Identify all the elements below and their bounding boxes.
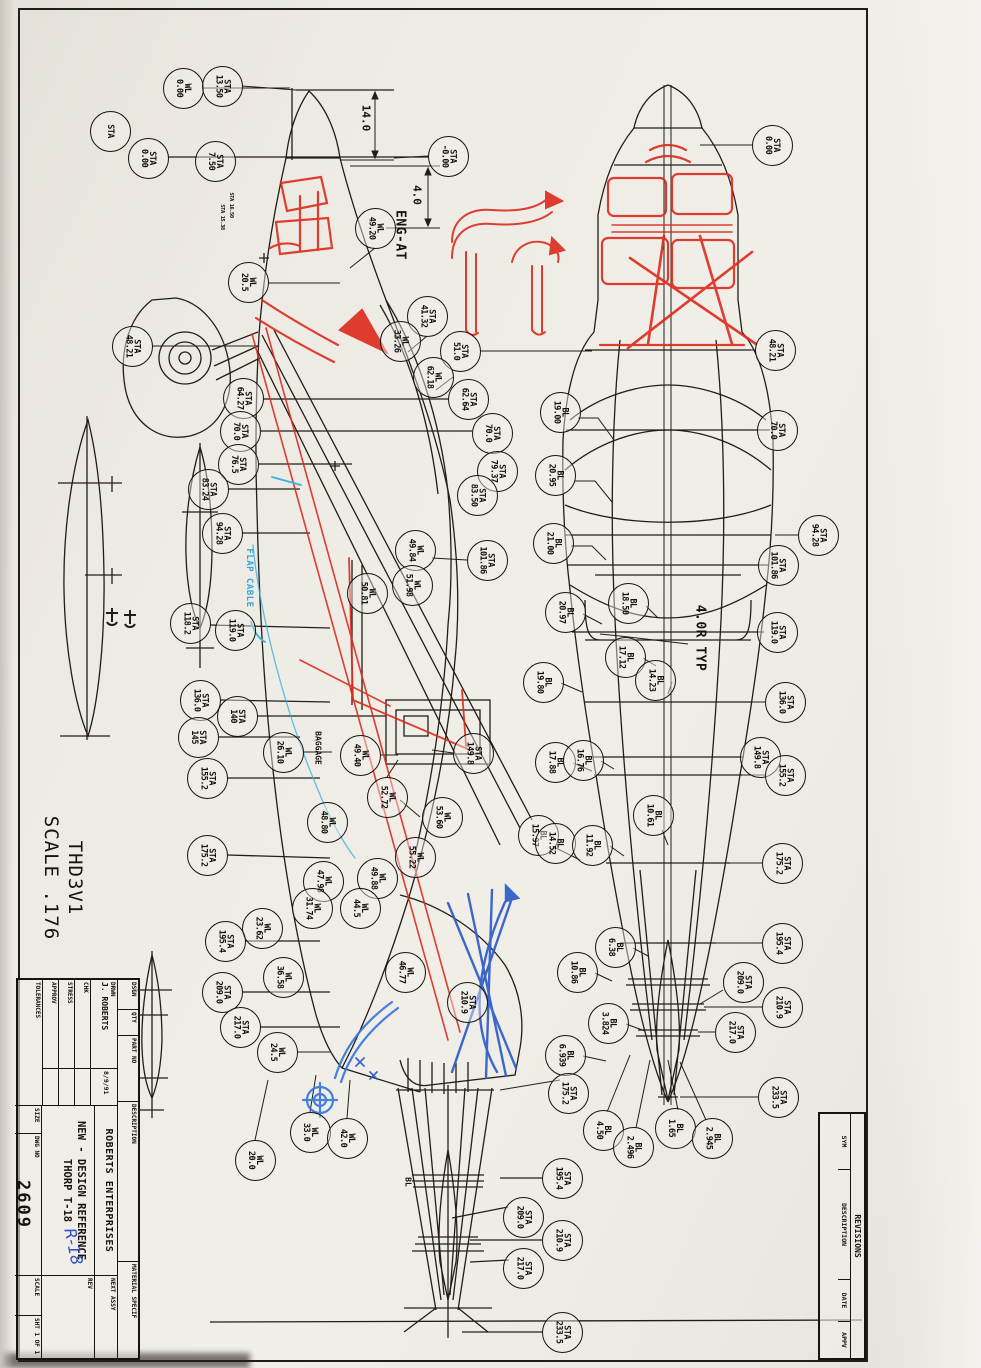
scale-label: SCALE <box>33 1278 40 1313</box>
balloon-text: STA101.86 <box>770 551 786 578</box>
station-balloon: STA195.4 <box>205 921 246 962</box>
balloon-text: STA195.4 <box>774 932 790 955</box>
tolerances-label: TOLERANCES <box>34 982 41 1103</box>
station-balloon: BL1.65 <box>655 1108 696 1149</box>
balloon-text: STA233.5 <box>554 1321 570 1344</box>
balloon-text: STA210.9 <box>459 991 475 1014</box>
balloon-text: STA62.64 <box>460 388 476 411</box>
drawing-title: NEW - DESIGN REFERENCE THORP T-18 R-18 <box>60 1108 93 1273</box>
balloon-text: WL49.84 <box>407 539 423 562</box>
balloon-text: WL20.0 <box>247 1151 263 1169</box>
approv-label: APPROV <box>50 982 57 1066</box>
balloon-text: WL50.81 <box>359 582 375 605</box>
balloon-text: STA140 <box>229 709 245 723</box>
balloon-text: STA0.00 <box>140 149 156 167</box>
station-balloon: BL14.23 <box>635 660 676 701</box>
balloon-text: STA149.8 <box>465 742 481 765</box>
rev-label: REV <box>86 1278 93 1356</box>
balloon-text: BL1.65 <box>667 1119 683 1137</box>
balloon-text: BL19.00 <box>552 401 568 424</box>
station-balloon: WL24.5 <box>257 1032 298 1073</box>
station-balloon: BL2.945 <box>692 1118 733 1159</box>
station-balloon: BL20.95 <box>535 455 576 496</box>
station-balloon: WL20.0 <box>235 1140 276 1181</box>
company-name: ROBERTS ENTERPRISES <box>103 1108 116 1273</box>
baggage-note: BAGGAGE <box>314 731 323 765</box>
balloon-text: WL44.5 <box>352 899 368 917</box>
station-balloon: WL44.5 <box>340 888 381 929</box>
balloon-text: STA175.2 <box>199 844 215 867</box>
balloon-text: WL48.80 <box>319 811 335 834</box>
balloon-text: WL49.20 <box>367 217 383 240</box>
station-balloon: BL6.939 <box>545 1035 586 1076</box>
station-balloon: WL62.18 <box>413 357 454 398</box>
balloon-text: WL49.40 <box>352 744 368 767</box>
dim-4: 4.0 <box>411 185 424 205</box>
dimension-lines <box>340 92 688 644</box>
station-balloon: WL42.0 <box>327 1118 368 1159</box>
balloon-text: STA149.8 <box>752 746 768 769</box>
station-balloon: STA101.86 <box>467 540 508 581</box>
station-balloon: WL49.20 <box>355 208 396 249</box>
balloon-text: BL18.50 <box>620 592 636 615</box>
station-balloon: WL49.40 <box>340 735 381 776</box>
balloon-text: WL33.0 <box>302 1123 318 1141</box>
balloon-text: BL16.76 <box>575 749 591 772</box>
station-balloon: BL2.496 <box>613 1127 654 1168</box>
station-balloon: STA149.8 <box>453 733 494 774</box>
station-balloon: STA175.2 <box>187 835 228 876</box>
title-block: DSGN QTY PART NO DESCRIPTION MATERIAL SP… <box>16 978 140 1360</box>
station-balloon: BL18.50 <box>608 583 649 624</box>
station-balloon: STA210.9 <box>447 982 488 1023</box>
balloon-text: STA51.0 <box>452 342 468 360</box>
station-balloon: STA140 <box>217 696 258 737</box>
station-balloon: STA136.0 <box>180 680 221 721</box>
rev-col-date: DATE <box>838 1280 850 1322</box>
station-balloon: WL50.81 <box>347 573 388 614</box>
balloon-text: WL52.72 <box>379 786 395 809</box>
station-balloon: STA210.9 <box>762 987 803 1028</box>
balloon-text: STA76.5 <box>230 455 246 473</box>
balloon-text: STA41.32 <box>419 305 435 328</box>
drwn-date: 8/9/91 <box>102 1071 116 1103</box>
balloon-text: STA70.0 <box>769 421 785 439</box>
balloon-text: STA209.0 <box>214 981 230 1004</box>
rev-col-appv: APPV <box>838 1322 850 1358</box>
sta-small-note-b: STA 15.38 <box>219 204 225 229</box>
balloon-text: STA209.0 <box>515 1206 531 1229</box>
station-balloon: WL52.72 <box>367 777 408 818</box>
balloon-text: STA0.00 <box>764 136 780 154</box>
station-balloon: STA70.0 <box>757 410 798 451</box>
fuselage-side-view <box>123 88 532 1094</box>
balloon-text: STA155.2 <box>777 764 793 787</box>
balloon-text: BL14.23 <box>647 669 663 692</box>
station-balloon: STA136.0 <box>765 682 806 723</box>
sheet-title-text: THD3V1 SCALE .176 <box>38 816 86 940</box>
station-balloon: STA195.4 <box>542 1158 583 1199</box>
balloon-text: BL21.00 <box>545 532 561 555</box>
balloon-text: STA195.4 <box>217 930 233 953</box>
station-balloon: WL0.00 <box>163 68 204 109</box>
balloon-text: STA94.28 <box>214 522 230 545</box>
station-balloon: WL53.60 <box>422 797 463 838</box>
balloon-text: STA175.2 <box>560 1082 576 1105</box>
balloon-text: STA145 <box>190 730 206 744</box>
next-assy-label: NEXT ASSY <box>109 1278 116 1356</box>
description-label: DESCRIPTION <box>130 1104 137 1259</box>
balloon-text: BL11.92 <box>584 834 600 857</box>
station-balloon: STA94.28 <box>798 515 839 556</box>
station-balloon: STA217.0 <box>503 1248 544 1289</box>
scanned-drawing-sheet: THD3V1 SCALE .176 ENG-AT 14.0 4.0 4.0R T… <box>0 0 981 1368</box>
station-balloon: STA70.0 <box>472 413 513 454</box>
balloon-text: STA195.4 <box>554 1167 570 1190</box>
station-balloon: WL31.74 <box>292 888 333 929</box>
balloon-text: BL17.88 <box>547 751 563 774</box>
balloon-text: STA48.21 <box>767 339 783 362</box>
dsgn-label: DSGN <box>130 982 137 1007</box>
balloon-text: WL24.5 <box>269 1043 285 1061</box>
station-balloon: WL46.77 <box>385 952 426 993</box>
balloon-text: BL20.95 <box>547 464 563 487</box>
balloon-text: STA83.50 <box>469 484 485 507</box>
drawing-title-line2: THORP T-18 <box>61 1159 73 1222</box>
station-balloon: BL10.61 <box>633 795 674 836</box>
balloon-text: STA119.0 <box>769 621 785 644</box>
station-balloon: STA94.28 <box>202 513 243 554</box>
station-balloon: STA175.2 <box>548 1073 589 1114</box>
station-balloon: STA13.50 <box>202 66 243 107</box>
station-balloon: WL33.26 <box>380 321 421 362</box>
station-balloon: STA217.0 <box>715 1012 756 1053</box>
balloon-text: STA119.0 <box>227 619 243 642</box>
station-balloon: STA7.50 <box>195 141 236 182</box>
balloon-text: STA <box>106 124 114 138</box>
station-balloon: BL14.52 <box>535 823 576 864</box>
drwn-name: J. ROBERTS <box>100 982 109 1066</box>
bl-note: BL <box>404 1177 413 1187</box>
part-no-label: PART NO <box>130 1038 137 1099</box>
balloon-text: STA233.5 <box>770 1086 786 1109</box>
station-balloon: STA195.4 <box>762 923 803 964</box>
drawing-number: 2609 <box>15 1136 33 1273</box>
station-balloon: WL26.10 <box>263 732 304 773</box>
rev-col-sym: SYM <box>838 1114 850 1170</box>
station-balloon: BL6.38 <box>595 927 636 968</box>
balloon-text: STA83.24 <box>200 478 216 501</box>
station-balloon: STA-0.00 <box>428 136 469 177</box>
model-code: THD3V1 <box>64 841 86 916</box>
balloon-text: STA217.0 <box>727 1021 743 1044</box>
balloon-text: WL53.60 <box>434 806 450 829</box>
station-balloon: STA83.50 <box>457 475 498 516</box>
balloon-text: WL23.62 <box>254 917 270 940</box>
rev-col-description: DESCRIPTION <box>838 1170 850 1280</box>
red-pen-exhaust-detail <box>452 192 564 335</box>
balloon-text: BL10.86 <box>569 961 585 984</box>
station-balloon: STA119.0 <box>757 612 798 653</box>
sta-small-note-a: STA 16.50 <box>228 192 234 217</box>
station-balloon: WL23.62 <box>242 908 283 949</box>
balloon-text: STA217.0 <box>232 1016 248 1039</box>
balloon-text: STA-0.00 <box>440 145 456 168</box>
station-balloon: STA <box>90 111 131 152</box>
station-balloon: STA155.2 <box>765 755 806 796</box>
balloon-text: WL49.88 <box>369 867 385 890</box>
dim-14: 14.0 <box>360 105 373 132</box>
balloon-text: STA101.86 <box>479 546 495 573</box>
station-balloon: WL51.98 <box>392 565 433 606</box>
station-balloon: STA209.0 <box>723 962 764 1003</box>
stress-label: STRESS <box>66 982 73 1066</box>
balloon-text: BL6.939 <box>557 1044 573 1067</box>
fuselage-top-view <box>563 85 773 1105</box>
station-balloon: STA217.0 <box>220 1007 261 1048</box>
station-balloon: BL21.00 <box>533 523 574 564</box>
station-balloon: WL48.80 <box>307 802 348 843</box>
balloon-text: STA210.9 <box>774 996 790 1019</box>
balloon-text: STA64.27 <box>235 387 251 410</box>
station-balloon: STA175.2 <box>762 843 803 884</box>
station-balloon: STA119.0 <box>215 610 256 651</box>
station-balloon: BL20.97 <box>545 592 586 633</box>
balloon-text: STA118.2 <box>182 612 198 635</box>
drwn-label: DRWN <box>109 982 116 1066</box>
station-balloon: STA48.21 <box>755 330 796 371</box>
balloon-text: STA70.0 <box>232 422 248 440</box>
balloon-text: STA217.0 <box>515 1257 531 1280</box>
revision-block: REVISIONS SYM DESCRIPTION DATE APPV <box>818 1112 866 1360</box>
balloon-text: BL14.52 <box>547 832 563 855</box>
balloon-text: WL31.74 <box>304 897 320 920</box>
station-balloon: STA209.0 <box>503 1197 544 1238</box>
sheet-count-label: SHT 1 OF 1 <box>33 1318 40 1356</box>
balloon-text: WL0.00 <box>175 79 191 97</box>
station-balloon: STA62.64 <box>448 379 489 420</box>
station-balloon: STA0.00 <box>128 138 169 179</box>
station-balloon: WL20.5 <box>228 262 269 303</box>
balloon-text: BL10.61 <box>645 804 661 827</box>
station-balloon: BL16.76 <box>563 740 604 781</box>
balloon-text: BL6.38 <box>607 938 623 956</box>
station-balloon: STA48.21 <box>112 326 153 367</box>
balloon-text: BL2.945 <box>704 1127 720 1150</box>
radius-typ-note: 4.0R TYP <box>693 605 708 672</box>
balloon-text: STA136.0 <box>777 691 793 714</box>
station-balloon: BL10.86 <box>557 952 598 993</box>
balloon-text: WL20.5 <box>240 273 256 291</box>
station-balloon: STA210.9 <box>542 1220 583 1261</box>
revisions-header: REVISIONS <box>850 1114 864 1358</box>
balloon-text: WL36.58 <box>275 966 291 989</box>
balloon-text: WL46.77 <box>397 961 413 984</box>
station-balloon: STA233.5 <box>758 1077 799 1118</box>
station-balloon: STA118.2 <box>170 603 211 644</box>
balloon-text: BL4.50 <box>595 1121 611 1139</box>
balloon-text: WL62.18 <box>425 366 441 389</box>
balloon-text: BL20.97 <box>557 601 573 624</box>
station-balloon: WL55.22 <box>395 837 436 878</box>
balloon-text: STA48.21 <box>124 335 140 358</box>
scale-note: SCALE .176 <box>40 816 62 940</box>
balloon-text: STA70.0 <box>484 424 500 442</box>
balloon-text: BL19.80 <box>535 671 551 694</box>
station-balloon: BL19.00 <box>540 392 581 433</box>
red-pen-engine-top <box>600 145 756 348</box>
station-balloon: STA101.86 <box>758 545 799 586</box>
balloon-text: BL2.496 <box>625 1136 641 1159</box>
balloon-text: BL3.824 <box>600 1012 616 1035</box>
station-balloon: STA83.24 <box>188 469 229 510</box>
station-balloon: BL3.824 <box>588 1003 629 1044</box>
cyan-pen-flap-cable-leader <box>251 477 355 858</box>
balloon-text: STA13.50 <box>214 75 230 98</box>
balloon-text: STA210.9 <box>554 1229 570 1252</box>
balloon-text: STA209.0 <box>735 971 751 994</box>
size-label: SIZE <box>33 1108 40 1131</box>
station-balloon: STA0.00 <box>752 125 793 166</box>
station-balloon: BL19.80 <box>523 662 564 703</box>
balloon-text: WL26.10 <box>275 741 291 764</box>
balloon-text: BL17.12 <box>617 646 633 669</box>
station-balloon: WL36.58 <box>263 957 304 998</box>
balloon-text: WL51.98 <box>404 574 420 597</box>
flap-cable-note: FLAP CABLE <box>244 548 254 607</box>
dwg-no-label: DWG NO <box>33 1136 40 1273</box>
material-label: MATERIAL SPECIF <box>130 1264 137 1356</box>
station-balloon: STA145 <box>178 717 219 758</box>
balloon-text: STA155.2 <box>199 767 215 790</box>
balloon-text: STA7.50 <box>207 152 223 170</box>
station-balloon: STA233.5 <box>542 1312 583 1353</box>
balloon-text: STA136.0 <box>192 689 208 712</box>
station-balloon: STA155.2 <box>187 758 228 799</box>
chk-label: CHK <box>82 982 89 1066</box>
balloon-text: WL55.22 <box>407 846 423 869</box>
qty-label: QTY <box>130 1012 137 1033</box>
station-balloon: BL11.92 <box>572 825 613 866</box>
balloon-text: STA94.28 <box>810 524 826 547</box>
balloon-text: STA175.2 <box>774 852 790 875</box>
balloon-text: WL33.26 <box>392 330 408 353</box>
balloon-text: WL42.0 <box>339 1129 355 1147</box>
balloon-text: STA79.37 <box>489 460 505 483</box>
station-balloon: WL33.0 <box>290 1112 331 1153</box>
